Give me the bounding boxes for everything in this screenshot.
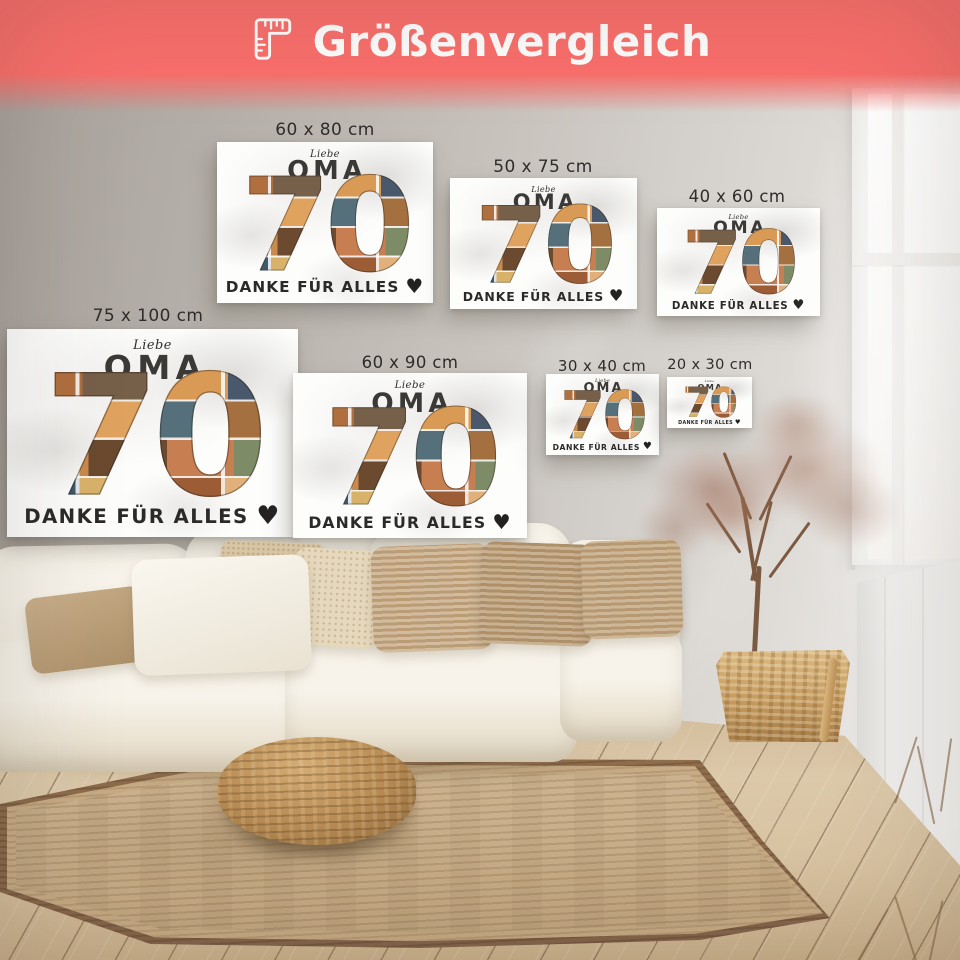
pillow-ribbed-tan <box>580 538 683 639</box>
pillow-ribbed-tan <box>370 543 494 653</box>
artwork-photo-number: 70 <box>657 225 820 304</box>
artwork-message-line: DANKE FÜR ALLES♥ <box>667 420 752 426</box>
heart-icon: ♥ <box>256 504 280 530</box>
header-content: Größenvergleich <box>249 14 712 68</box>
artwork-message: DANKE FÜR ALLES <box>308 513 486 532</box>
page-title: Größenvergleich <box>313 17 712 66</box>
canvas-30x40: Liebe OMA 70 DANKE FÜR ALLES♥ <box>546 374 659 455</box>
artwork-message: DANKE FÜR ALLES <box>678 421 733 426</box>
size-label-60x80: 60 x 80 cm <box>255 120 395 140</box>
artwork-photo-number: 70 <box>546 387 659 447</box>
size-label-50x75: 50 x 75 cm <box>473 157 613 177</box>
heart-icon: ♥ <box>735 420 741 426</box>
artwork-message-line: DANKE FÜR ALLES♥ <box>546 442 659 452</box>
size-label-75x100: 75 x 100 cm <box>73 306 223 326</box>
size-label-30x40: 30 x 40 cm <box>540 357 664 375</box>
artwork-message-line: DANKE FÜR ALLES♥ <box>657 299 820 312</box>
canvas-40x60: Liebe OMA 70 DANKE FÜR ALLES♥ <box>657 208 820 316</box>
plant-foliage <box>752 392 844 454</box>
artwork-message-line: DANKE FÜR ALLES♥ <box>217 277 433 297</box>
artwork-photo-number: 70 <box>217 167 433 285</box>
size-label-60x90: 60 x 90 cm <box>340 353 480 372</box>
artwork-message-line: DANKE FÜR ALLES♥ <box>7 504 298 530</box>
header-band: Größenvergleich <box>0 0 960 112</box>
artwork-message: DANKE FÜR ALLES <box>24 505 248 528</box>
canvas-50x75: Liebe OMA 70 DANKE FÜR ALLES♥ <box>450 178 637 309</box>
size-comparison-mockup: 60 x 80 cm 50 x 75 cm 40 x 60 cm 75 x 10… <box>0 0 960 960</box>
pillow-tan-lumbar <box>24 585 150 675</box>
artwork-message: DANKE FÜR ALLES <box>672 300 788 312</box>
ruler-icon <box>249 14 295 68</box>
pillow-white <box>131 554 312 676</box>
artwork-photo-number: 70 <box>293 399 527 520</box>
artwork-photo-number: 70 <box>667 385 752 423</box>
artwork-message: DANKE FÜR ALLES <box>226 278 400 296</box>
heart-icon: ♥ <box>792 299 805 312</box>
artwork-photo-number: 70 <box>7 361 298 514</box>
artwork-photo-number: 70 <box>450 198 637 294</box>
canvas-75x100: Liebe OMA 70 DANKE FÜR ALLES♥ <box>7 329 298 537</box>
heart-icon: ♥ <box>609 288 624 304</box>
canvas-20x30: Liebe OMA 70 DANKE FÜR ALLES♥ <box>667 377 752 428</box>
window-frame-crossbar <box>852 253 960 265</box>
heart-icon: ♥ <box>492 512 511 532</box>
canvas-60x80: Liebe OMA 70 DANKE FÜR ALLES♥ <box>217 142 433 303</box>
canvas-60x90: Liebe OMA 70 DANKE FÜR ALLES♥ <box>293 373 527 538</box>
pillow-ribbed-tan <box>478 541 595 647</box>
artwork-message-line: DANKE FÜR ALLES♥ <box>450 288 637 304</box>
size-label-20x30: 20 x 30 cm <box>650 357 770 373</box>
heart-icon: ♥ <box>643 442 653 452</box>
artwork-message: DANKE FÜR ALLES <box>553 443 640 452</box>
artwork-message: DANKE FÜR ALLES <box>463 289 604 304</box>
heart-icon: ♥ <box>405 277 424 297</box>
rug-field <box>16 766 824 934</box>
wicker-pouf <box>218 737 416 845</box>
artwork-message-line: DANKE FÜR ALLES♥ <box>293 512 527 532</box>
plant-foliage <box>798 468 900 550</box>
size-label-40x60: 40 x 60 cm <box>667 187 807 206</box>
